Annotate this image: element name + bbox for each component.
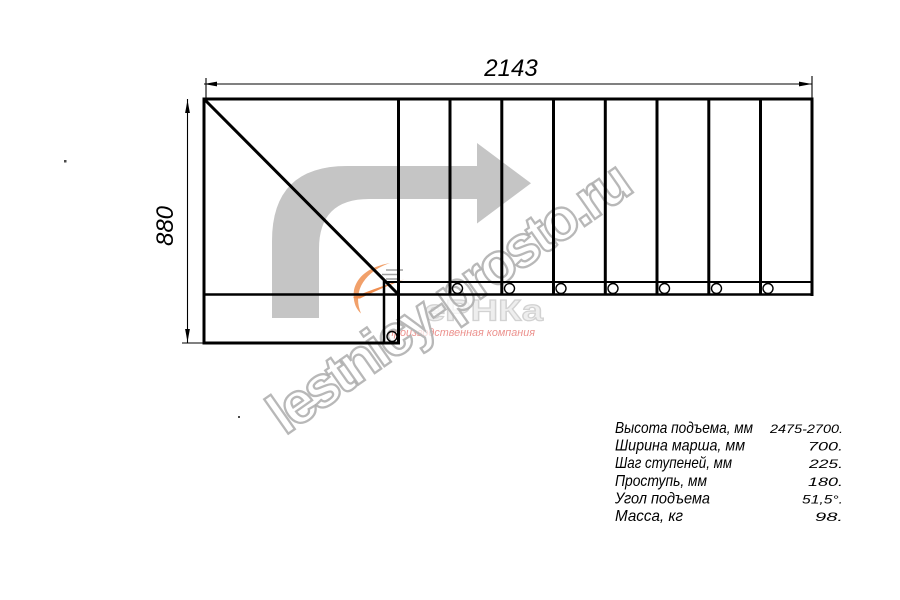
svg-text:Шаг ступеней, мм: Шаг ступеней, мм [615, 455, 732, 472]
svg-text:880: 880 [152, 205, 179, 246]
svg-text:Масса, кг: Масса, кг [615, 508, 683, 525]
svg-text:98.: 98. [815, 510, 843, 524]
svg-text:700.: 700. [808, 440, 843, 454]
svg-text:Высота подъема, мм: Высота подъема, мм [615, 420, 753, 437]
svg-text:180.: 180. [808, 475, 843, 489]
svg-text:2475-2700.: 2475-2700. [769, 422, 843, 436]
svg-text:2143: 2143 [483, 55, 538, 82]
svg-text:225.: 225. [808, 457, 843, 471]
svg-text:51,5°.: 51,5°. [802, 492, 843, 506]
svg-text:Ширина марша, мм: Ширина марша, мм [615, 438, 745, 455]
svg-text:Угол подъема: Угол подъема [614, 490, 710, 507]
svg-text:Проступь, мм: Проступь, мм [615, 473, 707, 490]
